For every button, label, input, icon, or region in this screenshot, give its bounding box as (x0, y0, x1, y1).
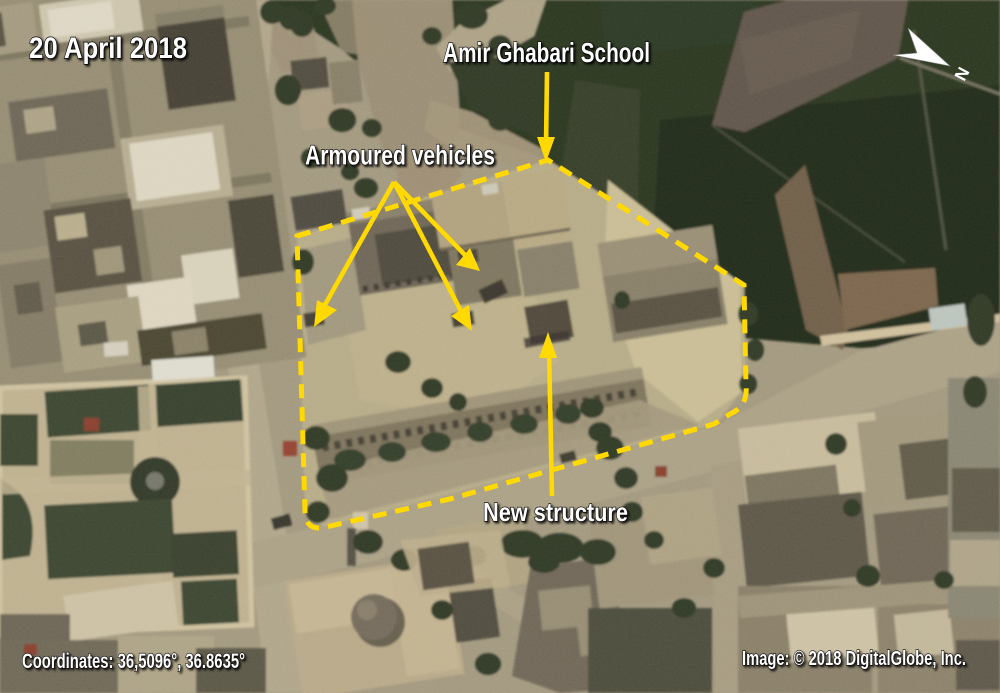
svg-text:Amir Ghabari School: Amir Ghabari School (443, 37, 650, 68)
svg-text:Armoured vehicles: Armoured vehicles (305, 140, 495, 171)
svg-text:20 April 2018: 20 April 2018 (29, 32, 187, 65)
svg-text:Image: © 2018 DigitalGlobe, In: Image: © 2018 DigitalGlobe, Inc. (742, 648, 966, 670)
svg-text:New structure: New structure (483, 497, 628, 527)
svg-text:Coordinates: 36,5096°, 36.8635: Coordinates: 36,5096°, 36.8635° (22, 649, 245, 673)
